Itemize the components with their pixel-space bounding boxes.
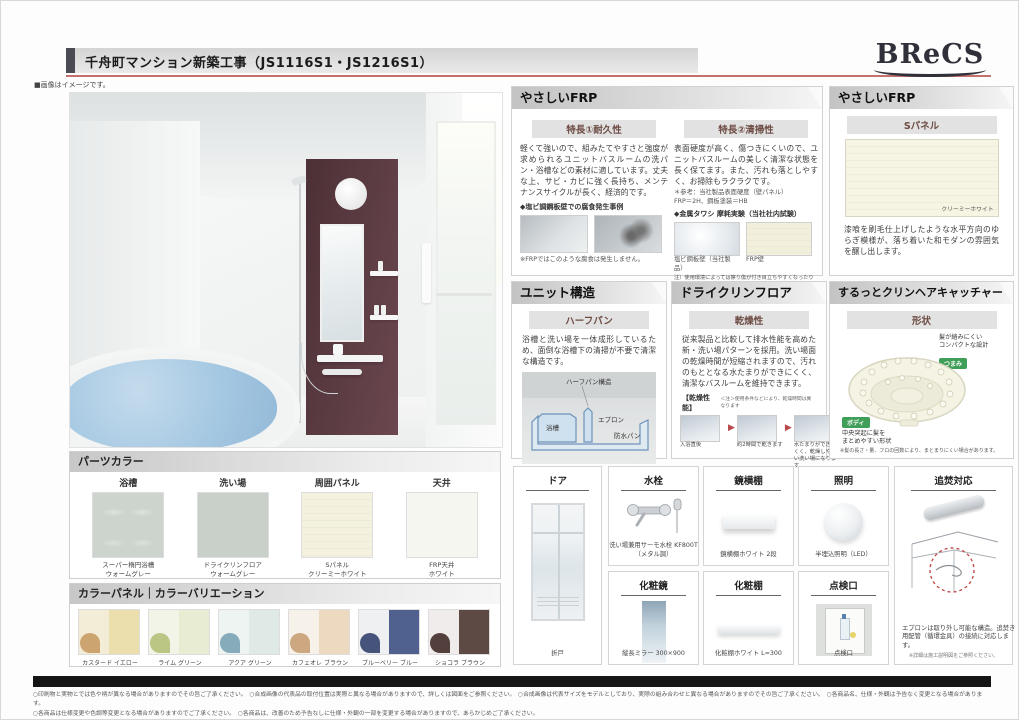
photo-bottle-1 [378, 261, 383, 271]
svg-text:エプロン: エプロン [598, 416, 624, 424]
svg-text:防水パン: 防水パン [614, 431, 640, 440]
tub-swatch [92, 492, 164, 558]
faucet-image [622, 495, 686, 539]
item-title: 化粧棚 [704, 578, 793, 592]
frp-corrosion-photos [520, 215, 668, 253]
item-caption: 点検口 [799, 650, 888, 659]
swatch-inset-photo [360, 633, 380, 653]
item-caption: 化粧棚ホワイト L=300 [704, 650, 793, 659]
door-image [531, 503, 585, 621]
corrosion-photo-1 [520, 215, 588, 253]
section-spanel: やさしいFRP Sパネル クリーミーホワイト 漆喰を刷毛仕上げしたような水平方向… [829, 86, 1014, 276]
dryfloor-performance-row: 【乾燥性能】 ＜注＞使用条件などにより、乾燥時間は異なります [682, 393, 816, 413]
parts-color-caption: Sパネル クリーミーホワイト [287, 561, 387, 579]
item-cell-mirror-shelf: 鏡横棚 鏡横棚ホワイト 2段 [703, 466, 794, 566]
item-title-rule [716, 490, 780, 491]
frp-corrosion-note: ※FRPではこのような腐食は発生しません。 [520, 256, 668, 265]
section-frp: やさしいFRP 特長①耐久性 軽くて強いので、組みたてやすさと強度が求められるユ… [511, 86, 823, 276]
panel-swatch [301, 492, 373, 558]
item-caption: 半埋込照明（LED） [799, 551, 888, 560]
brand-logo: BReCS [869, 41, 991, 77]
swatch-inset-photo [150, 633, 170, 653]
scrub-caption-frp: FRP壁 [746, 256, 812, 274]
parts-color-label: 周囲パネル [287, 476, 387, 489]
parts-color-caption: FRP天井 ホワイト [392, 561, 492, 579]
haircatcher-bottom-badge: ボディ [842, 417, 870, 428]
frp-corrosion-label: ◆塩ビ調鋼板壁での腐食発生事例 [520, 202, 668, 212]
item-title: ドア [514, 473, 601, 487]
parts-color-item-floor: 洗い場 ドライクリンフロア ウォームグレー [183, 476, 283, 579]
dryfloor-step-1: 入浴直後 [680, 415, 726, 449]
item-cell-light: 照明 半埋込照明（LED） [798, 466, 889, 566]
item-caption: 縦長ミラー 300×900 [609, 650, 698, 659]
dryfloor-step-image [680, 415, 720, 442]
color-swatch [78, 609, 140, 655]
dryfloor-step-image [737, 415, 777, 442]
dryfloor-subtitle: 乾燥性 [689, 311, 809, 329]
item-caption: 折戸 [514, 650, 601, 659]
footer-bar [33, 676, 991, 687]
haircatcher-bottom-annotation: ボディ 中央突起に髪を まとめやすい形状 [842, 410, 912, 447]
item-caption: 洗い場兼用サーモ水栓 KF800T （メタル調） [609, 542, 698, 559]
color-swatch [428, 609, 490, 655]
corrosion-photo-2 [594, 215, 662, 253]
parts-color-item-panel: 周囲パネル Sパネル クリーミーホワイト [287, 476, 387, 579]
swatch-inset-photo [290, 633, 310, 653]
color-variation-blueberry: ブルーベリー ブルー [358, 609, 422, 667]
svg-text:ハーフパン構造: ハーフパン構造 [566, 377, 612, 386]
color-swatch [148, 609, 210, 655]
parts-color-box: パーツカラー 浴槽 スーパー楕円浴槽 ウォームグレー 洗い場 ドライクリンフロア… [69, 451, 501, 579]
item-title: 点検口 [799, 578, 888, 592]
swatch-inset-photo [430, 633, 450, 653]
item-title-rule [716, 595, 780, 596]
item-note: ※詳細は施工説明図をご参照ください。 [895, 653, 1012, 660]
color-variation-lime: ライム グリーン [148, 609, 212, 667]
item-cell-faucet: 水栓 洗い場兼用サーモ水栓 KF800T （メタル調） [608, 466, 699, 566]
hatch-bottle-cap [842, 614, 846, 619]
item-title-rule [811, 595, 875, 596]
section-haircatcher: するっとクリンヘアキャッチャー 形状 髪が絡みにくい コンパクトな設計 つまみ … [829, 281, 1014, 459]
color-variation-cafeole: カフェオレ ブラウン [288, 609, 352, 667]
scrub-caption-steel: 塩ビ鋼板壁（当社製品） [674, 256, 740, 274]
item-title-rule [526, 490, 589, 491]
footer-line-1: ○印刷物と実物とでは色や柄が異なる場合がありますのでその旨ご了承ください。 ○合… [33, 691, 991, 710]
frp-durability-heading: 特長①耐久性 [532, 120, 656, 138]
dryfloor-perf-note: ＜注＞使用条件などにより、乾燥時間は異なります [720, 395, 816, 409]
ceiling-swatch [406, 492, 478, 558]
section-unit-title: ユニット構造 [512, 282, 666, 304]
scrub-photo-frp [746, 222, 812, 256]
halfpan-diagram: ハーフパン構造 浴槽 エプロン 防水パン [522, 372, 656, 464]
item-title: 化粧鏡 [609, 578, 698, 592]
frp-scrub-photos [674, 222, 818, 256]
dryfloor-perf-label: 【乾燥性能】 [682, 393, 718, 413]
item-title-rule [911, 490, 995, 491]
brochure-page: 千舟町マンション新築工事（JS1116S1・JS1216S1） BReCS ■画… [0, 0, 1019, 720]
dryfloor-step-caption: 入浴直後 [680, 442, 726, 449]
parts-color-label: 天井 [392, 476, 492, 489]
mirror-shelf-image [723, 513, 775, 529]
parts-color-label: 洗い場 [183, 476, 283, 489]
hatch-bottle [840, 618, 850, 640]
bathroom-photo [69, 92, 503, 448]
door-vent-lines [537, 597, 579, 609]
footer-disclaimers: ○印刷物と実物とでは色や柄が異なる場合がありますのでその旨ご了承ください。 ○合… [33, 691, 991, 719]
haircatcher-subtitle: 形状 [847, 311, 997, 329]
item-title: 照明 [799, 473, 888, 487]
haircatcher-bottom-text: 中央突起に髪を まとめやすい形状 [842, 430, 912, 447]
dryfloor-steps: 入浴直後 ▶ 約2時間で乾きます ▶ 水たまりができにくく、乾燥しやすい洗い場に… [680, 415, 818, 470]
photo-mirror [320, 224, 364, 342]
parts-color-caption: スーパー楕円浴槽 ウォームグレー [78, 561, 178, 579]
section-frp-title: やさしいFRP [512, 87, 822, 109]
swatch-inset-photo [80, 633, 100, 653]
page-title: 千舟町マンション新築工事（JS1116S1・JS1216S1） [85, 52, 433, 71]
parts-color-label: 浴槽 [78, 476, 178, 489]
reheat-diagram [906, 518, 1002, 596]
photo-corner-shelf-2 [370, 315, 398, 320]
photo-door-pane [436, 121, 496, 425]
image-disclaimer: ■画像はイメージです。 [34, 80, 110, 90]
frp-hardness-reference: ＊参考：当社製品表面硬度（壁パネル） FRP＝2H、鋼板塗装＝HB [674, 189, 818, 207]
item-title: 水栓 [609, 473, 698, 487]
haircatcher-note: ※髪の長さ・量、フロの回数により、まとまりにくい場合があります。 [840, 447, 1008, 454]
color-panel-row: カスタード イエロー ライム グリーン アクア グリーン [70, 604, 500, 667]
unit-subtitle: ハーフパン [529, 311, 649, 329]
item-cell-mirror: 化粧鏡 縦長ミラー 300×900 [608, 571, 699, 665]
photo-bottle-2 [374, 305, 379, 315]
photo-door-handle [436, 293, 492, 296]
photo-towel [422, 243, 431, 303]
frp-cleanability-column: 特長②清掃性 表面硬度が高く、傷つきにくいので、ユニットバスルームの美しく清潔な… [674, 113, 818, 296]
color-swatch-label: カフェオレ ブラウン [288, 658, 352, 667]
item-cell-reheat: 追焚対応 エプロンは取り外し可能な構造。追焚き用配管（循環金具）の接続に対応しま… [894, 466, 1013, 665]
frp-scrub-test-label: ◆金属タワシ 摩耗実験（当社社内試験） [674, 209, 818, 219]
item-title: 鏡横棚 [704, 473, 793, 487]
dryfloor-step-2: 約2時間で乾きます [737, 415, 783, 449]
color-swatch-label: ライム グリーン [148, 658, 212, 667]
color-variation-aqua: アクア グリーン [218, 609, 282, 667]
item-title-rule [621, 595, 685, 596]
dryfloor-step-caption: 約2時間で乾きます [737, 442, 783, 449]
section-dryfloor-title: ドライクリンフロア [672, 282, 826, 304]
shelf-image [718, 624, 780, 634]
item-cell-door: ドア 折戸 [513, 466, 602, 665]
frp-cleanability-body: 表面硬度が高く、傷つきにくいので、ユニットバスルームの美しく清潔な状態を長く保て… [674, 143, 818, 187]
dryfloor-body: 従来製品と比較して排水性能を高めた新・洗い場パターンを採用。洗い場面の乾燥時間が… [682, 334, 816, 389]
color-panel-title: カラーパネル｜カラーバリエーション [70, 584, 500, 604]
item-title-rule [621, 490, 685, 491]
svg-text:浴槽: 浴槽 [546, 423, 560, 432]
section-dryfloor: ドライクリンフロア 乾燥性 従来製品と比較して排水性能を高めた新・洗い場パターン… [671, 281, 827, 459]
spanel-color-label: クリーミーホワイト [941, 204, 993, 213]
hatch-sponge [850, 632, 856, 638]
photo-round-light [335, 178, 367, 210]
spanel-sample-image: クリーミーホワイト [845, 139, 999, 217]
photo-corner-shelf-1 [370, 271, 398, 276]
item-title: 追焚対応 [895, 473, 1012, 487]
unit-body: 浴槽と洗い場を一体成形しているため、面倒な浴槽下の清掃が不要で清潔な構造です。 [522, 334, 656, 367]
dryfloor-step-image [794, 415, 834, 442]
color-swatch [218, 609, 280, 655]
color-panel-box: カラーパネル｜カラーバリエーション カスタード イエロー ライム グリーン [69, 583, 501, 667]
photo-bathtub [69, 347, 300, 448]
header-rule [66, 75, 991, 77]
item-title-rule [811, 490, 875, 491]
frp-cleanability-heading: 特長②清掃性 [684, 120, 808, 138]
frp-scrub-captions: 塩ビ鋼板壁（当社製品） FRP壁 [674, 256, 818, 274]
arrow-right-icon: ▶ [785, 415, 792, 442]
spanel-subtitle: Sパネル [847, 116, 997, 134]
section-haircatcher-title: するっとクリンヘアキャッチャー [830, 282, 1013, 304]
parts-color-item-tub: 浴槽 スーパー楕円浴槽 ウォームグレー [78, 476, 178, 579]
color-swatch-label: ショコラ ブラウン [428, 658, 492, 667]
floor-swatch [197, 492, 269, 558]
color-swatch [288, 609, 350, 655]
photo-shower-pole [299, 183, 301, 423]
hatch-image [816, 604, 872, 656]
spanel-body: 漆喰を刷毛仕上げしたような水平方向のゆらぎ模様が、落ち着いた和モダンの雰囲気を醸… [844, 224, 999, 257]
color-variation-chocolat: ショコラ ブラウン [428, 609, 492, 667]
parts-color-title: パーツカラー [70, 452, 500, 472]
light-image [825, 503, 863, 541]
item-caption: 鏡横棚ホワイト 2段 [704, 551, 793, 560]
footer-line-2: ○各商品は仕様変更や色調等変更となる場合がありますのでご了承ください。 ○各商品… [33, 710, 991, 719]
item-caption: エプロンは取り外し可能な構造。追焚き用配管（循環金具）の接続に対応します。 [895, 625, 1019, 651]
section-spanel-title: やさしいFRP [830, 87, 1013, 109]
photo-bottle-3 [381, 305, 386, 315]
color-variation-custard: カスタード イエロー [78, 609, 142, 667]
photo-bathtub-water [69, 359, 277, 448]
parts-color-row: 浴槽 スーパー楕円浴槽 ウォームグレー 洗い場 ドライクリンフロア ウォームグレ… [70, 472, 500, 579]
frp-durability-body: 軽くて強いので、組みたてやすさと強度が求められるユニットバスルームの洗パン・浴槽… [520, 143, 668, 198]
brand-logo-swoosh [874, 69, 986, 77]
frp-durability-column: 特長①耐久性 軽くて強いので、組みたてやすさと強度が求められるユニットバスルーム… [520, 113, 668, 265]
color-swatch-label: アクア グリーン [218, 658, 282, 667]
header-accent [66, 48, 75, 73]
scrub-photo-steel [674, 222, 740, 256]
color-swatch-label: カスタード イエロー [78, 658, 142, 667]
swatch-inset-photo [220, 633, 240, 653]
color-swatch [358, 609, 420, 655]
section-unit-structure: ユニット構造 ハーフパン 浴槽と洗い場を一体成形しているため、面倒な浴槽下の清掃… [511, 281, 667, 459]
arrow-right-icon: ▶ [728, 415, 735, 442]
parts-color-item-ceiling: 天井 FRP天井 ホワイト [392, 476, 492, 579]
item-cell-hatch: 点検口 点検口 [798, 571, 889, 665]
color-swatch-label: ブルーベリー ブルー [358, 658, 422, 667]
brand-logo-text: BReCS [869, 41, 991, 68]
parts-color-caption: ドライクリンフロア ウォームグレー [183, 561, 283, 579]
item-cell-shelf: 化粧棚 化粧棚ホワイト L=300 [703, 571, 794, 665]
